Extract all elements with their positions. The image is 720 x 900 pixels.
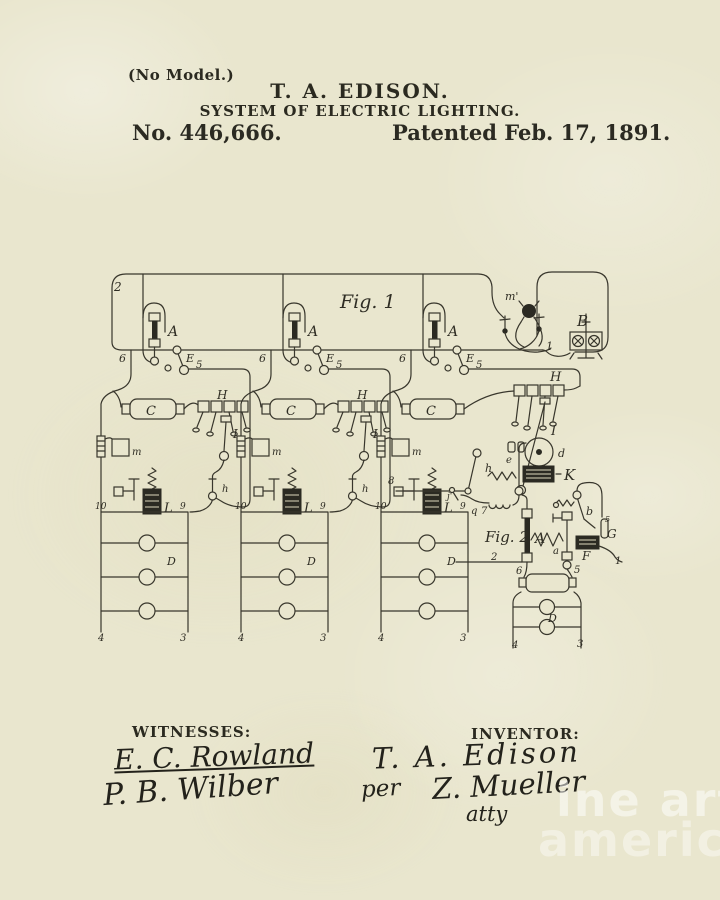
diagram-label-1-4: 1 [546,340,553,353]
diagram-label-6-32: 6 [119,352,126,365]
diagram-label-3-28: 3 [577,639,583,650]
diagram-label-L-65: L [443,501,453,516]
diagram-label-3-40: 3 [180,633,186,644]
diagram-label-D-38: D [166,555,176,568]
diagram-label-h-58: h [362,484,368,495]
diagram-label-3-55: 3 [320,633,326,644]
patent-page: { "page": { "header": { "no_model": "(No… [0,0,720,900]
attorney-title: atty [466,802,507,826]
diagram-label-10-36: 10 [95,502,107,512]
pilot-lamp-icon [523,305,536,318]
diagram-label-e-8: e [506,455,512,466]
diagram-label-H-56: H [356,388,368,402]
diagram-label-5-20: 5 [605,515,610,524]
diagram-label-2-23: 2 [490,552,497,563]
diagram-label-L-35: L [163,501,173,516]
diagram-label-A-59: A [446,324,458,340]
diagram-label-9-67: 9 [460,502,466,512]
diagram-label-8-14: 8 [388,476,394,487]
diagram-label-L-50: L [303,501,313,516]
diagram-label-5-46: 5 [336,360,342,371]
patent-diagram: 2Fig. 1m'B1HIdeKhj'q78Fig. 2AabG5F1265D4… [0,0,720,900]
diagram-label-h-43: h [222,484,228,495]
diagram-label-K-9: K [563,466,576,484]
diagram-label-H-41: H [216,388,228,402]
diagram-label-d-7: d [558,447,565,460]
per-note: per [360,775,401,803]
diagram-label-b-18: b [586,505,593,518]
diagram-label-10-66: 10 [375,502,387,512]
diagram-label-E-60: E [465,352,474,365]
diagram-label-6-24: 6 [516,566,523,577]
diagram-label-6-47: 6 [259,352,266,365]
diagram-label-D-68: D [446,555,456,568]
diagram-label-A-44: A [306,324,318,340]
diagram-label-A-16: A [533,531,545,547]
diagram-label-4-27: 4 [511,640,518,651]
fig2-box-c [526,574,569,592]
diagram-label-9-52: 9 [320,502,326,512]
diagram-label-m-34: m [132,447,141,458]
diagram-label-C-33: C [146,404,156,419]
diagram-label-1-22: 1 [615,556,621,567]
diagram-label-10-51: 10 [235,502,247,512]
diagram-label-4-69: 4 [377,633,384,644]
diagram-label-B-3: B [576,312,588,330]
diagram-label-m-49: m [272,447,281,458]
diagram-label-Fig1-1: Fig. 1 [339,291,396,313]
diagram-label-5-25: 5 [574,565,580,576]
diagram-label-C-48: C [286,404,296,419]
dynamo-b-group [500,272,608,359]
diagram-label-I-6: I [550,424,557,439]
diagram-label-H-5: H [549,370,562,385]
diagram-label-5-31: 5 [196,360,202,371]
diagram-label-m-2: m' [505,290,518,303]
diagram-label-6-62: 6 [399,352,406,365]
magnet-f [576,536,599,549]
diagram-label-I-42: I [232,427,238,441]
diagram-label-A-29: A [166,324,178,340]
diagram-label-E-30: E [185,352,194,365]
diagram-label-7-13: 7 [481,506,488,517]
diagram-label-D-26: D [547,612,557,625]
diagram-label-E-45: E [325,352,334,365]
diagram-label-h-10: h [485,462,492,475]
diagram-label-F-21: F [581,549,591,563]
diagram-label-3-70: 3 [460,633,466,644]
diagram-label-G-19: G [607,527,617,541]
diagram-label-4-39: 4 [97,633,104,644]
diagram-label-4-54: 4 [237,633,244,644]
diagram-label-2-0: 2 [113,280,122,294]
diagram-label-q-12: q [471,506,477,517]
diagram-label-C-63: C [426,404,436,419]
diagram-label-D-53: D [306,555,316,568]
diagram-label-9-37: 9 [180,502,186,512]
diagram-label-m-64: m [412,447,421,458]
diagram-label-5-61: 5 [476,360,482,371]
diagram-label-Fig2-15: Fig. 2 [484,528,529,546]
diagram-label-a-17: a [553,546,559,557]
diagram-label-I-57: I [372,427,378,441]
